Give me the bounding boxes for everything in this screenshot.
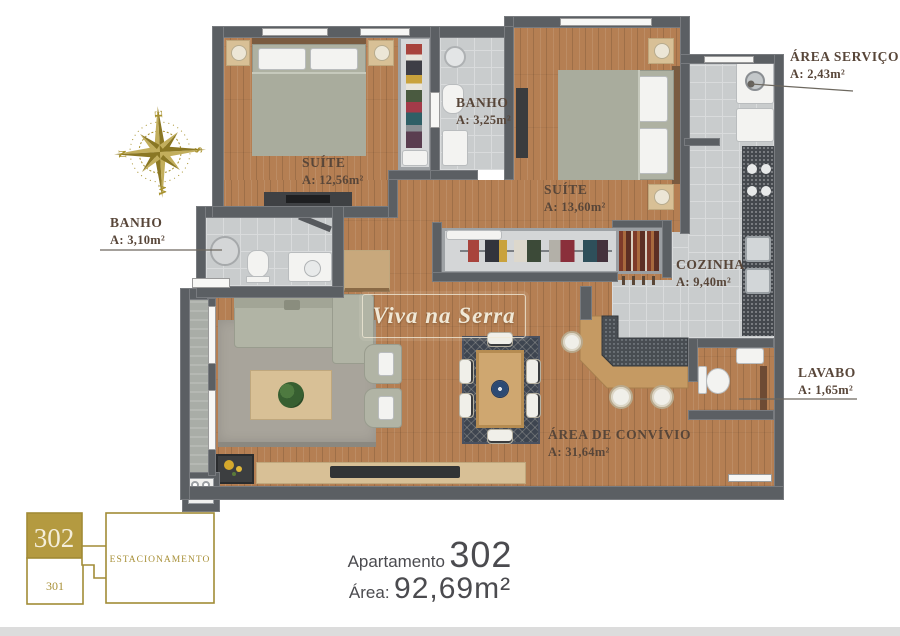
- room-label-area-servico: ÁREA SERVIÇO A: 2,43m²: [790, 48, 899, 82]
- window: [704, 56, 754, 63]
- bar-stool: [609, 385, 633, 409]
- wall: [180, 288, 190, 500]
- wall: [332, 206, 344, 298]
- lamp-icon: [231, 45, 247, 61]
- entry-door: [192, 278, 230, 288]
- flower-icon: [224, 460, 234, 470]
- room-label-area-convivio: ÁREA DE CONVÍVIO A: 31,64m²: [548, 426, 691, 460]
- window: [360, 28, 410, 36]
- pantry-cabinet: [616, 228, 662, 274]
- wall: [212, 206, 398, 218]
- shower-icon: [444, 46, 466, 68]
- compass-n: N: [117, 150, 129, 159]
- room-area: A: 12,56m²: [302, 172, 364, 188]
- room-name: LAVABO: [798, 364, 856, 382]
- logo-text: Viva na Serra: [372, 303, 515, 329]
- room-name: ÁREA SERVIÇO: [790, 48, 899, 66]
- closet-shelf: [402, 150, 428, 166]
- floorplan-page: N E S W Viva na Serra SUÍTE A: 12,56m² B…: [0, 0, 900, 636]
- keyplan-connector: [82, 546, 107, 578]
- window: [560, 18, 652, 26]
- pillow: [638, 76, 668, 122]
- lamp-icon: [654, 189, 670, 205]
- stove-burner: [761, 164, 771, 174]
- room-label-banho-suites: BANHO A: 3,25m²: [456, 94, 511, 128]
- bed-blanket-suite-1: [252, 72, 366, 156]
- title-prefix: Apartamento: [348, 552, 445, 571]
- sink-basin-icon: [304, 260, 321, 277]
- room-name: BANHO: [110, 214, 165, 232]
- room-name: SUÍTE: [302, 154, 364, 172]
- room-name: SUÍTE: [544, 181, 606, 199]
- hanging-clothes: [406, 44, 422, 148]
- bathroom-sink: [736, 348, 764, 364]
- room-label-cozinha: COZINHA A: 9,40m²: [676, 256, 745, 290]
- bottom-bar: [0, 627, 900, 636]
- pillow: [258, 48, 306, 70]
- tv-icon: [286, 195, 330, 203]
- bathroom-sink: [442, 130, 468, 166]
- kitchen-sink: [745, 236, 771, 262]
- plant-icon: [278, 382, 304, 408]
- kitchen-sink: [745, 268, 771, 294]
- hall-cabinet: [344, 250, 390, 292]
- tv-icon: [330, 466, 460, 478]
- island-granite-top: [602, 316, 688, 366]
- room-area: A: 2,43m²: [790, 66, 899, 82]
- bar-stool: [650, 385, 674, 409]
- title-number: 302: [449, 534, 512, 575]
- pillow: [638, 128, 668, 174]
- tv-panel-suite-2: [516, 88, 528, 158]
- washer-door-icon: [745, 71, 765, 91]
- wall: [688, 338, 774, 348]
- keyplan-unit-301-label: 301: [46, 579, 64, 593]
- developer-logo: Viva na Serra: [362, 294, 526, 338]
- wall: [186, 486, 784, 500]
- sofa-cushion: [284, 300, 300, 310]
- wall: [688, 338, 698, 382]
- floor-balcony: [190, 298, 208, 474]
- toilet-tank: [246, 276, 270, 283]
- flower-art: [216, 454, 254, 484]
- door-leaf: [760, 366, 767, 410]
- room-area: A: 13,60m²: [544, 199, 606, 215]
- dining-chair: [526, 359, 541, 384]
- stove-burner: [761, 186, 771, 196]
- stove-burner: [747, 186, 757, 196]
- balcony-window: [208, 390, 216, 450]
- room-area: A: 3,10m²: [110, 232, 165, 248]
- title-area-value: 92,69m²: [394, 572, 511, 605]
- toilet-icon: [247, 250, 269, 278]
- room-label-lavabo: LAVABO A: 1,65m²: [798, 364, 856, 398]
- room-area: A: 31,64m²: [548, 444, 691, 460]
- wall: [662, 220, 672, 278]
- room-label-banho-social: BANHO A: 3,10m²: [110, 214, 165, 248]
- bed-blanket-suite-2: [558, 70, 640, 180]
- room-name: COZINHA: [676, 256, 745, 274]
- wall: [580, 286, 592, 320]
- compass-rose: N E S W: [98, 90, 222, 214]
- wardrobe-shelf: [446, 230, 502, 240]
- armchair-throw: [378, 352, 394, 376]
- title-line-2: Área: 92,69m²: [280, 572, 580, 606]
- keyplan-parking-label: ESTACIONAMENTO: [110, 555, 211, 565]
- balcony-window: [208, 306, 216, 364]
- wall: [430, 170, 478, 180]
- window: [262, 28, 328, 36]
- compass-s: S: [193, 147, 205, 154]
- title-area-label: Área:: [349, 583, 390, 602]
- stove-burner: [747, 164, 757, 174]
- hanging-clothes: [468, 240, 608, 262]
- wall: [432, 272, 618, 282]
- lamp-icon: [654, 43, 670, 59]
- wall: [680, 16, 690, 234]
- compass-e: E: [153, 110, 165, 118]
- room-area: A: 9,40m²: [676, 274, 745, 290]
- plan-title: Apartamento 302 Área: 92,69m²: [280, 534, 580, 606]
- room-name: ÁREA DE CONVÍVIO: [548, 426, 691, 444]
- centerpiece-icon: [492, 381, 508, 397]
- room-area: A: 1,65m²: [798, 382, 856, 398]
- compass-w: W: [157, 184, 170, 196]
- room-area: A: 3,25m²: [456, 112, 511, 128]
- armchair-throw: [378, 396, 394, 420]
- wall: [774, 54, 784, 500]
- shower-icon: [210, 236, 240, 266]
- lamp-icon: [374, 45, 390, 61]
- wall: [688, 410, 774, 420]
- title-line-1: Apartamento 302: [280, 534, 580, 576]
- dining-chair: [459, 393, 474, 418]
- dining-chair: [459, 359, 474, 384]
- pillow: [310, 48, 358, 70]
- bar-stool: [561, 331, 583, 353]
- wall: [684, 138, 720, 146]
- room-label-suite-2: SUÍTE A: 13,60m²: [544, 181, 606, 215]
- toilet-icon: [706, 368, 730, 394]
- room-name: BANHO: [456, 94, 511, 112]
- dining-chair: [487, 429, 513, 444]
- keyplan-unit-302-label: 302: [34, 523, 75, 553]
- dining-chair: [526, 393, 541, 418]
- key-plan: 302 301 ESTACIONAMENTO: [12, 505, 224, 613]
- window: [728, 474, 772, 482]
- door-opening: [430, 92, 440, 128]
- room-label-suite-1: SUÍTE A: 12,56m²: [302, 154, 364, 188]
- laundry-tank: [736, 108, 774, 142]
